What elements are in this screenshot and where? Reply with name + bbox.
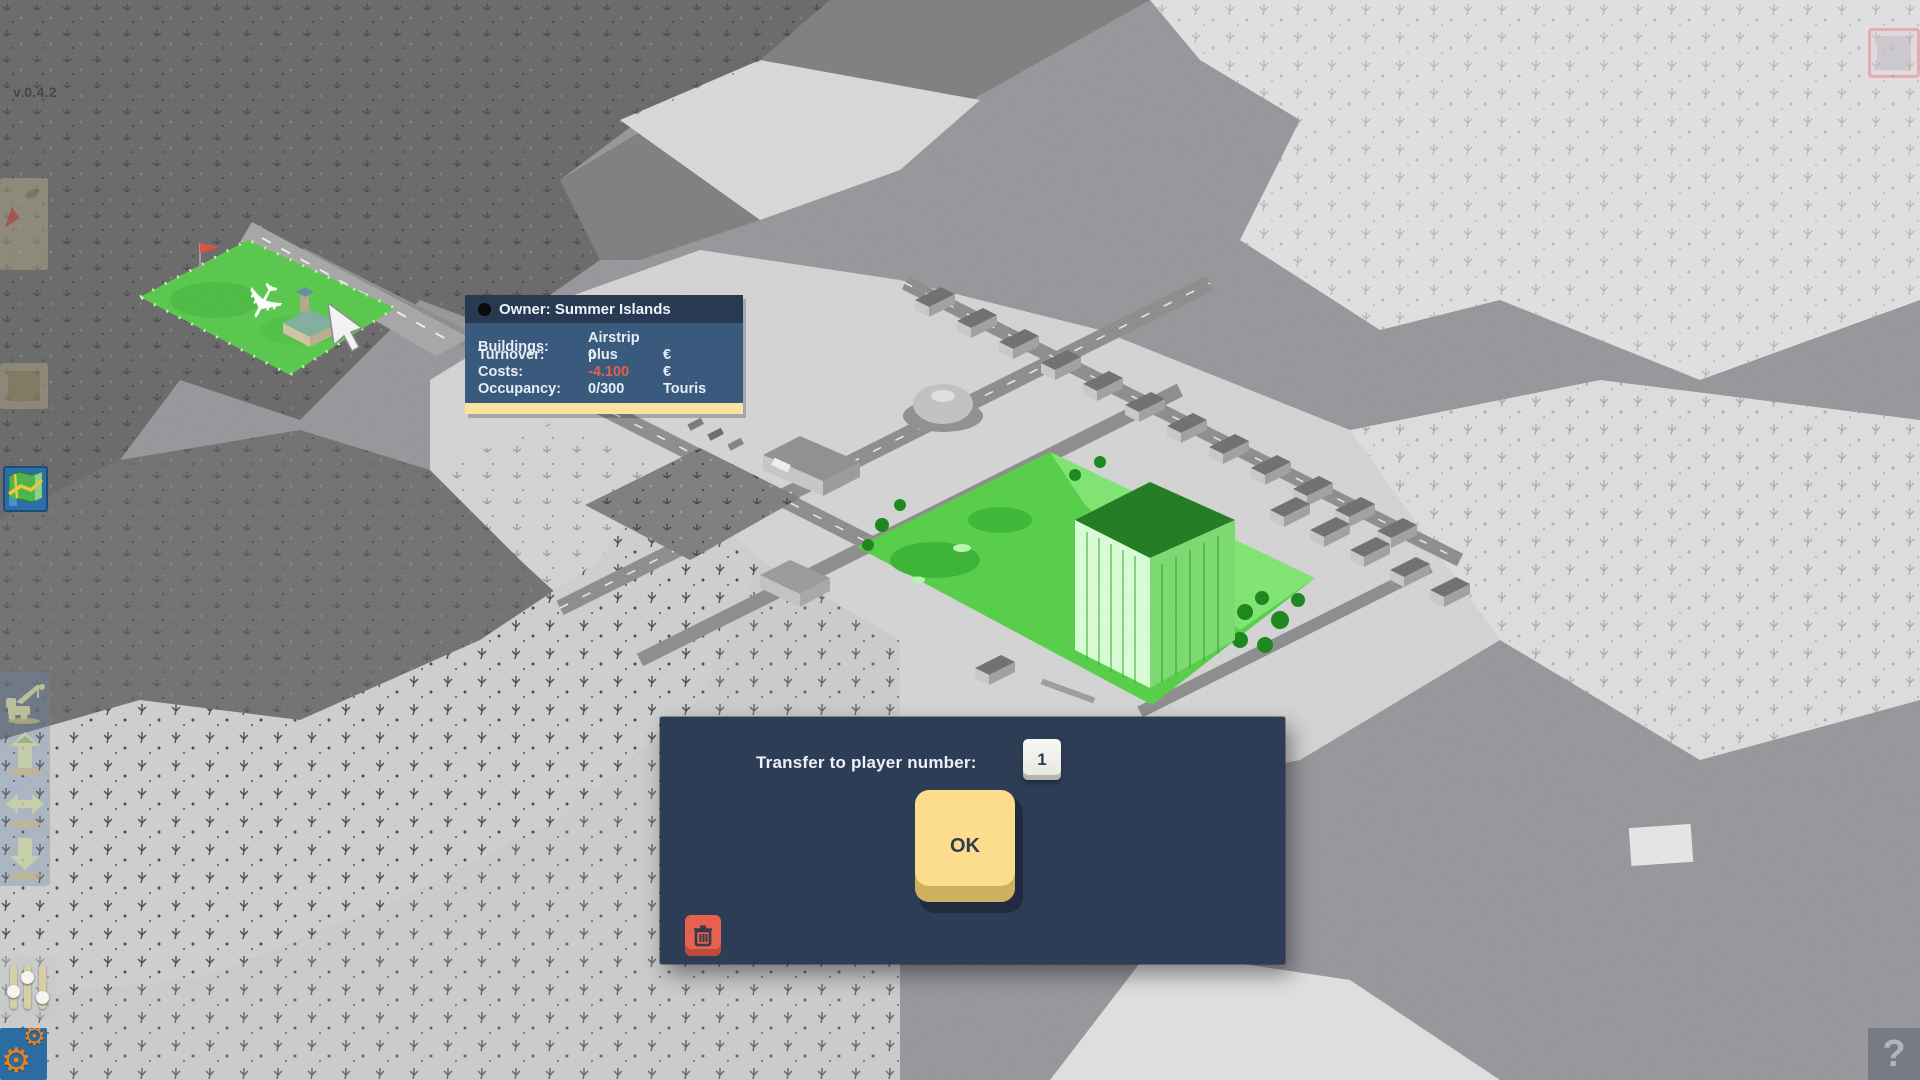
upgrade-tool-button[interactable] [4, 730, 46, 776]
help-button[interactable]: ? [1868, 1028, 1920, 1080]
tooltip-row-occupancy: Occupancy: 0/300 Touris [478, 381, 743, 398]
costs-unit: € [663, 364, 743, 381]
economy-sliders-button[interactable] [0, 956, 56, 1018]
occupancy-unit: Touris [663, 381, 743, 398]
sliders-icon [10, 965, 17, 1009]
owner-title: Owner: Summer Islands [499, 301, 671, 318]
minimap-button[interactable] [3, 466, 48, 512]
costs-label: Costs: [478, 364, 588, 381]
faded-tool-icon [8, 371, 40, 401]
transfer-arrows-icon [4, 782, 46, 828]
question-mark-icon: ? [1882, 1033, 1905, 1076]
crane-tool-button[interactable] [4, 678, 46, 724]
gear-icon: ⚙ [23, 1028, 46, 1050]
faded-corner-button[interactable] [1868, 28, 1920, 78]
faded-tool-button[interactable] [0, 363, 48, 409]
parrot-icon-button[interactable] [0, 178, 48, 270]
delete-button[interactable] [685, 915, 721, 956]
settings-button[interactable]: ⚙ ⚙ [0, 1028, 47, 1080]
turnover-unit: € [663, 347, 743, 364]
faded-corner-icon [1877, 36, 1911, 70]
transfer-tool-button[interactable] [4, 782, 46, 828]
occupancy-label: Occupancy: [478, 381, 588, 398]
tooltip-row-buildings: Buildings: Airstrip plus [478, 330, 743, 347]
map-icon [5, 468, 46, 508]
upgrade-arrow-icon [4, 730, 46, 776]
owner-tooltip: Owner: Summer Islands Buildings: Airstri… [465, 295, 743, 414]
tooltip-header: Owner: Summer Islands [465, 295, 743, 323]
crane-icon [4, 678, 46, 724]
leaf-icon [24, 187, 40, 200]
owner-color-dot [478, 303, 491, 316]
game-screen: ✈ [0, 0, 1920, 1080]
transfer-dialog: Transfer to player number: OK [660, 717, 1285, 964]
parrot-icon [5, 207, 22, 231]
sliders-icon [39, 965, 46, 1009]
tooltip-body: Buildings: Airstrip plus Turnover: 0 € C… [465, 323, 743, 403]
trash-icon [693, 925, 713, 947]
tooltip-accent-bar [465, 403, 743, 414]
sliders-icon [24, 965, 31, 1009]
turnover-value: 0 [588, 347, 663, 364]
ok-button[interactable]: OK [915, 790, 1015, 902]
build-tool-panel [0, 672, 50, 886]
downgrade-tool-button[interactable] [4, 834, 46, 880]
tooltip-row-turnover: Turnover: 0 € [478, 347, 743, 364]
occupancy-value: 0/300 [588, 381, 663, 398]
downgrade-arrow-icon [4, 834, 46, 880]
version-label: v.0.4.2 [13, 84, 57, 100]
tooltip-row-costs: Costs: -4.100 € [478, 364, 743, 381]
costs-value: -4.100 [588, 364, 663, 381]
player-number-input[interactable] [1023, 739, 1061, 780]
transfer-prompt: Transfer to player number: [756, 753, 982, 773]
turnover-label: Turnover: [478, 347, 588, 364]
